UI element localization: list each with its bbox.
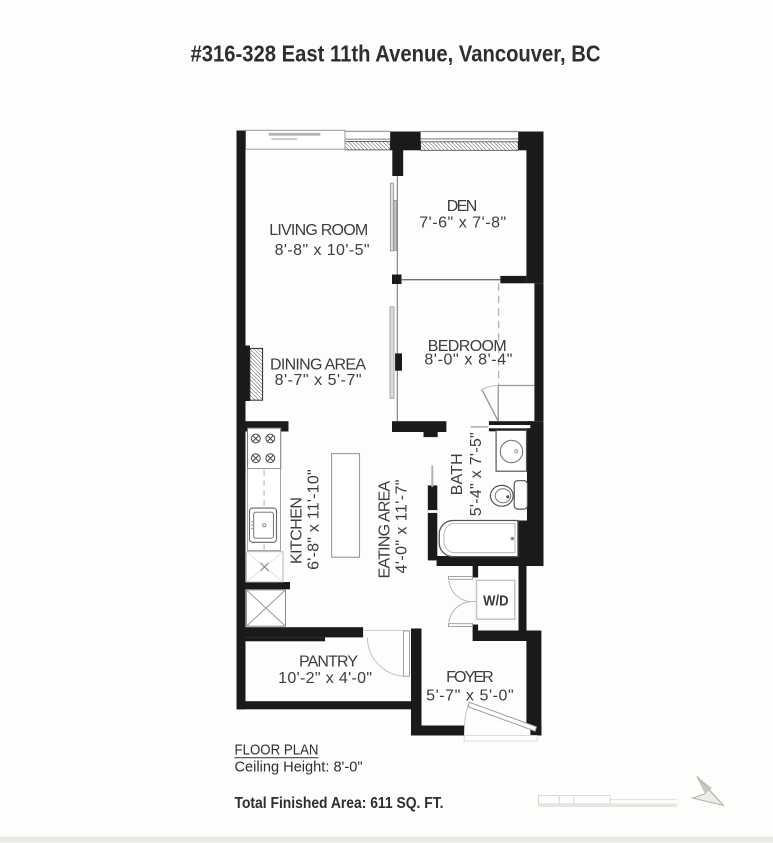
svg-text:6'-8" x 11'-10": 6'-8" x 11'-10": [305, 469, 322, 570]
svg-text:8'-7" x 5'-7": 8'-7" x 5'-7": [275, 372, 362, 389]
svg-text:Total Finished Area: 611 SQ. F: Total Finished Area: 611 SQ. FT.: [235, 795, 444, 812]
svg-text:Ceiling Height: 8'-0": Ceiling Height: 8'-0": [235, 760, 363, 776]
svg-text:DINING AREA: DINING AREA: [270, 357, 366, 374]
svg-text:BATH: BATH: [449, 453, 466, 495]
svg-text:7'-6" x 7'-8": 7'-6" x 7'-8": [419, 214, 506, 231]
svg-text:EATING AREA: EATING AREA: [377, 481, 394, 579]
svg-text:5'-7" x 5'-0": 5'-7" x 5'-0": [426, 688, 514, 705]
svg-text:FLOOR PLAN: FLOOR PLAN: [235, 743, 319, 759]
svg-text:DEN: DEN: [447, 198, 478, 215]
svg-text:#316-328 East 11th Avenue, Van: #316-328 East 11th Avenue, Vancouver, BC: [191, 41, 601, 67]
svg-text:4'-0" x 11'-7": 4'-0" x 11'-7": [394, 480, 411, 574]
svg-text:8'-8" x 10'-5": 8'-8" x 10'-5": [275, 242, 370, 259]
svg-text:W/D: W/D: [483, 594, 509, 610]
svg-text:FOYER: FOYER: [446, 669, 494, 686]
svg-text:LIVING ROOM: LIVING ROOM: [269, 222, 368, 239]
svg-text:5'-4" x 7'-5": 5'-4" x 7'-5": [468, 432, 485, 516]
svg-text:KITCHEN: KITCHEN: [288, 497, 305, 564]
svg-text:10'-2" x 4'-0": 10'-2" x 4'-0": [278, 670, 372, 687]
svg-text:8'-0" x 8'-4": 8'-0" x 8'-4": [424, 352, 512, 369]
svg-text:PANTRY: PANTRY: [299, 653, 358, 670]
